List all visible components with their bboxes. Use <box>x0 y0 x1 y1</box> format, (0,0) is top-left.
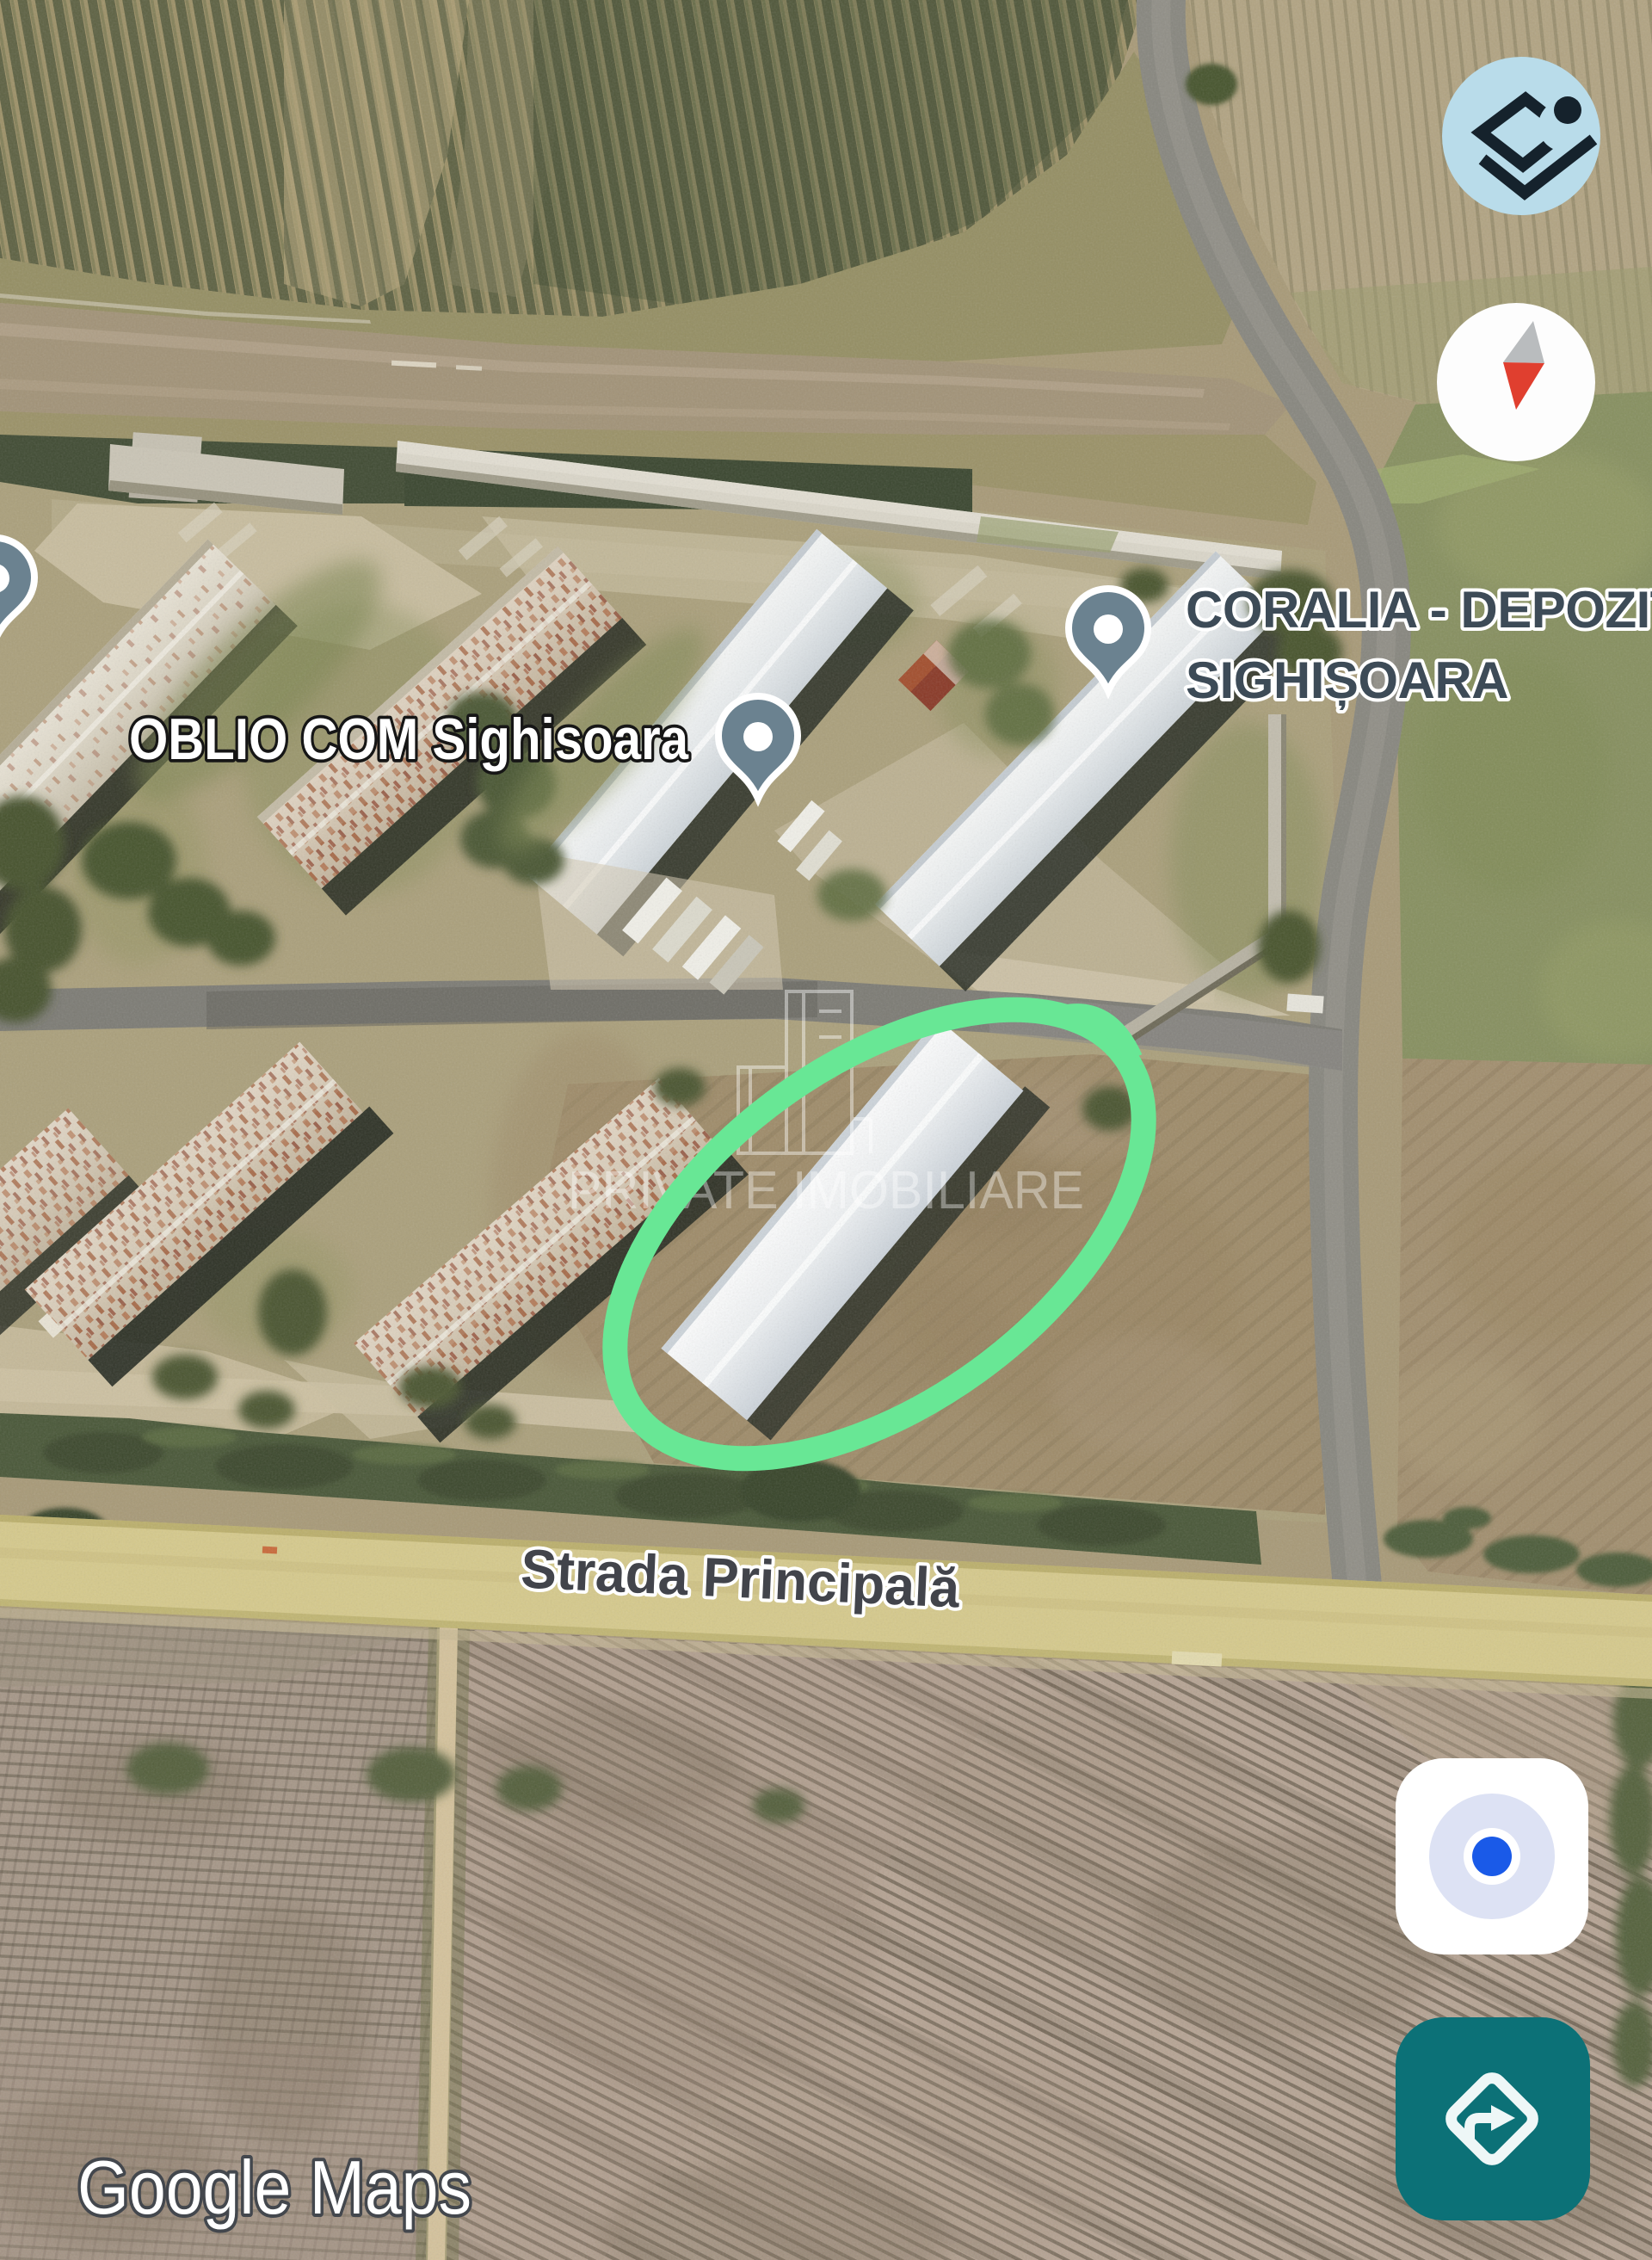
svg-text:Google Maps: Google Maps <box>77 2145 472 2230</box>
svg-text:PRIVATE IMOBILIARE: PRIVATE IMOBILIARE <box>568 1161 1084 1220</box>
svg-text:SIGHIȘOARA: SIGHIȘOARA <box>1186 651 1508 710</box>
svg-text:OBLIO COM Sighisoara: OBLIO COM Sighisoara <box>129 707 689 772</box>
svg-text:CORALIA - DEPOZIT: CORALIA - DEPOZIT <box>1186 581 1652 639</box>
